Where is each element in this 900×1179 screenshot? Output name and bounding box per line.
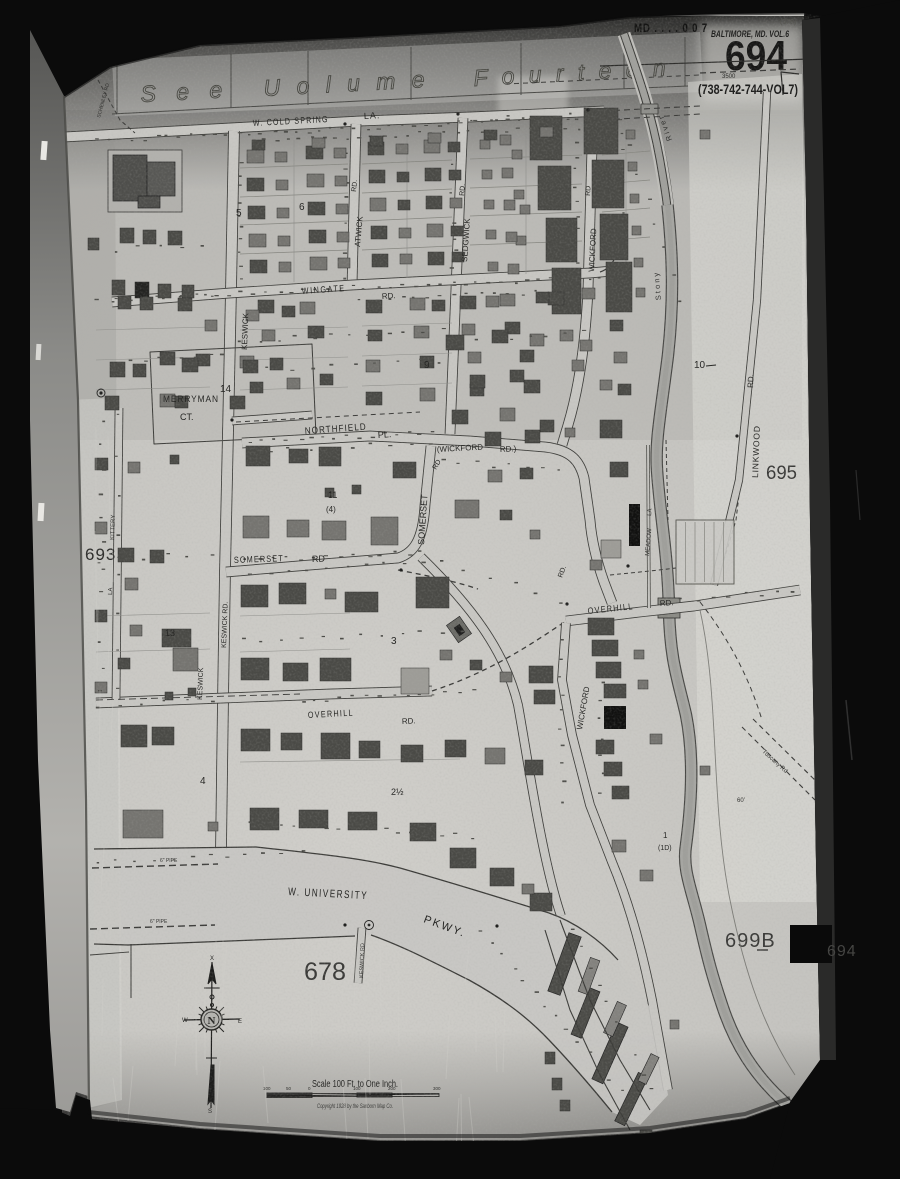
svg-text:PL.: PL. <box>377 429 391 440</box>
svg-text:S: S <box>208 1109 212 1115</box>
svg-text:MD . . . . 0 0 7: MD . . . . 0 0 7 <box>634 21 708 35</box>
svg-text:14: 14 <box>220 384 232 395</box>
svg-text:RD: RD <box>585 186 593 196</box>
svg-text:60’: 60’ <box>737 798 745 804</box>
svg-text:100: 100 <box>263 1086 271 1091</box>
svg-text:9: 9 <box>424 360 430 371</box>
svg-text:3500: 3500 <box>722 74 736 80</box>
svg-text:6: 6 <box>299 202 305 213</box>
svg-text:CT.: CT. <box>180 412 194 422</box>
svg-text:678: 678 <box>304 958 346 986</box>
svg-text:10: 10 <box>694 360 706 371</box>
svg-text:KESWICK: KESWICK <box>240 312 250 350</box>
svg-text:MERRYMAN: MERRYMAN <box>163 394 219 404</box>
svg-text:694: 694 <box>827 943 857 960</box>
svg-text:6" PIPE: 6" PIPE <box>160 858 178 864</box>
svg-text:100: 100 <box>353 1086 361 1091</box>
svg-text:LA: LA <box>647 508 654 516</box>
svg-text:KITTERY: KITTERY <box>110 515 117 540</box>
svg-text:693: 693 <box>85 545 116 564</box>
svg-text:Copyright 1928 by the Sanborn: Copyright 1928 by the Sanborn Map Co. <box>317 1104 393 1110</box>
svg-text:13: 13 <box>165 628 175 638</box>
svg-text:695: 695 <box>766 463 797 484</box>
svg-text:RD.: RD. <box>660 598 674 608</box>
svg-text:699B: 699B <box>725 930 776 952</box>
svg-text:RD: RD <box>312 554 326 564</box>
svg-text:6" PIPE: 6" PIPE <box>150 919 168 925</box>
svg-text:3: 3 <box>391 636 397 647</box>
svg-text:X: X <box>210 956 214 962</box>
svg-text:KESWICK: KESWICK <box>197 667 205 700</box>
svg-text:5: 5 <box>236 208 242 219</box>
svg-text:4: 4 <box>200 776 206 787</box>
svg-text:11: 11 <box>328 490 337 500</box>
svg-text:S e e: S e e <box>140 76 230 107</box>
svg-text:LA: LA <box>108 588 114 596</box>
svg-text:200: 200 <box>388 1086 396 1091</box>
svg-text:SOMERSET: SOMERSET <box>234 553 284 565</box>
svg-text:LA.: LA. <box>364 110 381 121</box>
svg-text:LINKWOOD: LINKWOOD <box>750 425 762 478</box>
svg-text:RD.: RD. <box>459 184 467 197</box>
svg-text:RD.: RD. <box>351 179 359 192</box>
svg-text:2½: 2½ <box>391 787 404 797</box>
svg-text:KESWICK RD: KESWICK RD <box>359 943 366 978</box>
svg-text:RD.: RD. <box>382 291 396 301</box>
svg-text:RD.: RD. <box>402 716 416 726</box>
svg-text:RD.): RD.) <box>500 444 517 454</box>
svg-text:(4): (4) <box>326 505 336 514</box>
svg-text:(378): (378) <box>780 19 796 26</box>
svg-text:300: 300 <box>433 1086 441 1091</box>
svg-text:N: N <box>208 1015 216 1027</box>
svg-text:E: E <box>238 1019 242 1025</box>
svg-text:(1D): (1D) <box>658 845 672 852</box>
svg-text:50: 50 <box>286 1086 292 1091</box>
svg-text:W: W <box>182 1018 188 1024</box>
svg-text:RD.: RD. <box>746 374 755 388</box>
svg-text:1: 1 <box>663 831 668 840</box>
